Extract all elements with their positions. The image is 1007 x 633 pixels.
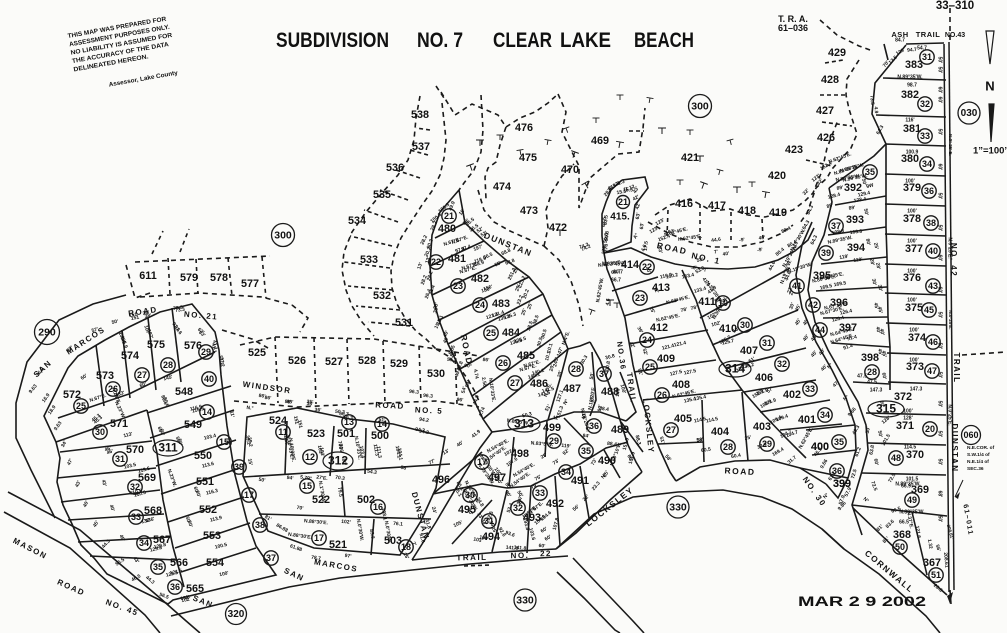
svg-text:34: 34 bbox=[922, 159, 932, 169]
svg-text:97': 97' bbox=[344, 553, 352, 560]
svg-text:100': 100' bbox=[903, 408, 913, 414]
svg-text:28': 28' bbox=[868, 258, 875, 266]
svg-text:45': 45' bbox=[876, 306, 883, 314]
svg-text:527: 527 bbox=[325, 356, 343, 368]
svg-text:27: 27 bbox=[510, 378, 520, 388]
svg-text:N.0°25'E.: N.0°25'E. bbox=[947, 237, 953, 259]
svg-text:573: 573 bbox=[96, 370, 114, 382]
svg-text:491: 491 bbox=[571, 475, 589, 487]
svg-text:548: 548 bbox=[175, 386, 193, 398]
svg-text:532: 532 bbox=[373, 290, 391, 302]
svg-text:100.9: 100.9 bbox=[906, 149, 919, 155]
svg-text:S.W.1/4 of: S.W.1/4 of bbox=[967, 452, 990, 458]
svg-text:489: 489 bbox=[611, 424, 629, 436]
svg-text:578: 578 bbox=[210, 272, 228, 284]
svg-text:553: 553 bbox=[203, 530, 221, 542]
svg-text:320: 320 bbox=[228, 609, 245, 620]
svg-text:50': 50' bbox=[589, 372, 596, 380]
svg-text:63.5: 63.5 bbox=[603, 215, 610, 225]
svg-text:611: 611 bbox=[139, 270, 156, 282]
svg-text:33: 33 bbox=[535, 488, 545, 498]
svg-text:N.E.COR. of: N.E.COR. of bbox=[967, 445, 995, 451]
svg-text:421: 421 bbox=[681, 152, 699, 164]
svg-text:405: 405 bbox=[674, 413, 692, 425]
svg-text:535: 535 bbox=[373, 189, 391, 201]
svg-text:44: 44 bbox=[815, 325, 825, 335]
svg-text:40: 40 bbox=[204, 374, 214, 384]
svg-text:96': 96' bbox=[456, 397, 463, 404]
svg-text:579: 579 bbox=[180, 272, 198, 284]
svg-text:141.8: 141.8 bbox=[505, 545, 518, 552]
svg-text:31: 31 bbox=[922, 52, 932, 62]
svg-text:45: 45 bbox=[924, 305, 934, 315]
svg-text:12: 12 bbox=[305, 452, 315, 462]
svg-text:TRAIL: TRAIL bbox=[456, 553, 487, 563]
svg-text:147.3: 147.3 bbox=[870, 387, 883, 393]
svg-text:39: 39 bbox=[821, 248, 831, 258]
svg-text:419: 419 bbox=[769, 207, 787, 219]
svg-text:ROAD: ROAD bbox=[724, 465, 756, 477]
svg-text:577: 577 bbox=[241, 278, 259, 290]
svg-text:60.7: 60.7 bbox=[613, 269, 623, 275]
svg-text:485: 485 bbox=[517, 350, 535, 362]
svg-text:94.7: 94.7 bbox=[907, 47, 917, 54]
svg-text:33: 33 bbox=[920, 131, 930, 141]
svg-text:35: 35 bbox=[153, 562, 163, 572]
svg-text:529: 529 bbox=[390, 358, 408, 370]
svg-text:-9': -9' bbox=[739, 237, 745, 244]
svg-text:537: 537 bbox=[412, 141, 430, 153]
svg-text:34: 34 bbox=[561, 467, 571, 477]
svg-text:528: 528 bbox=[358, 355, 376, 367]
svg-text:50': 50' bbox=[937, 343, 943, 350]
svg-text:36: 36 bbox=[170, 582, 180, 592]
svg-text:33: 33 bbox=[805, 384, 815, 394]
svg-text:27: 27 bbox=[666, 425, 676, 435]
svg-text:536: 536 bbox=[386, 162, 404, 174]
svg-text:33–310: 33–310 bbox=[936, 0, 974, 12]
svg-text:89': 89' bbox=[836, 185, 844, 192]
svg-text:LAKE: LAKE bbox=[560, 29, 611, 52]
svg-text:423: 423 bbox=[785, 144, 803, 156]
svg-text:531: 531 bbox=[395, 317, 413, 329]
svg-text:311: 311 bbox=[158, 441, 178, 455]
svg-text:330: 330 bbox=[516, 594, 534, 606]
svg-text:54.7: 54.7 bbox=[917, 45, 927, 51]
svg-text:42: 42 bbox=[808, 300, 818, 310]
svg-text:63': 63' bbox=[635, 212, 642, 220]
svg-text:26: 26 bbox=[657, 390, 667, 400]
svg-text:409: 409 bbox=[657, 353, 675, 365]
svg-text:523: 523 bbox=[307, 428, 325, 440]
svg-text:533: 533 bbox=[360, 254, 378, 266]
svg-text:418: 418 bbox=[738, 205, 756, 217]
svg-text:66.9: 66.9 bbox=[901, 483, 911, 489]
svg-text:50': 50' bbox=[937, 225, 943, 232]
svg-text:23: 23 bbox=[635, 293, 645, 303]
svg-text:330: 330 bbox=[669, 501, 687, 513]
svg-text:300: 300 bbox=[691, 100, 709, 112]
svg-text:15: 15 bbox=[219, 437, 229, 447]
svg-text:46: 46 bbox=[928, 337, 938, 347]
svg-text:411: 411 bbox=[698, 296, 715, 308]
svg-text:483: 483 bbox=[492, 298, 510, 310]
svg-text:368: 368 bbox=[893, 529, 911, 541]
svg-text:35: 35 bbox=[581, 446, 591, 456]
svg-text:501: 501 bbox=[337, 428, 355, 440]
svg-text:90°: 90° bbox=[464, 363, 472, 370]
svg-text:80': 80' bbox=[864, 238, 871, 246]
svg-text:28: 28 bbox=[163, 360, 173, 370]
svg-text:427: 427 bbox=[816, 105, 834, 117]
svg-text:51': 51' bbox=[378, 417, 385, 424]
svg-text:100': 100' bbox=[905, 178, 915, 184]
svg-text:404: 404 bbox=[711, 426, 729, 438]
svg-text:35: 35 bbox=[834, 437, 844, 447]
svg-text:50': 50' bbox=[937, 57, 943, 64]
svg-text:60': 60' bbox=[880, 372, 887, 380]
svg-text:500: 500 bbox=[371, 430, 389, 442]
svg-text:102': 102' bbox=[341, 519, 351, 526]
svg-text:96.3: 96.3 bbox=[409, 389, 419, 396]
svg-text:28': 28' bbox=[874, 262, 881, 270]
svg-text:TRAIL: TRAIL bbox=[952, 352, 961, 383]
svg-text:N.°: N.° bbox=[246, 405, 253, 412]
svg-text:48: 48 bbox=[891, 453, 901, 463]
svg-text:25: 25 bbox=[486, 328, 496, 338]
svg-text:415.: 415. bbox=[610, 212, 630, 223]
svg-text:50': 50' bbox=[937, 67, 943, 74]
svg-text:25: 25 bbox=[645, 362, 655, 372]
svg-text:574: 574 bbox=[121, 350, 139, 362]
svg-text:51: 51 bbox=[931, 570, 941, 580]
svg-text:550: 550 bbox=[194, 450, 212, 462]
svg-text:60': 60' bbox=[937, 97, 943, 104]
svg-text:412: 412 bbox=[650, 322, 668, 334]
svg-text:26: 26 bbox=[498, 358, 508, 368]
svg-text:378: 378 bbox=[903, 213, 921, 225]
svg-text:SEC.36: SEC.36 bbox=[967, 466, 984, 472]
svg-text:50': 50' bbox=[937, 431, 943, 438]
svg-text:50': 50' bbox=[862, 208, 869, 216]
svg-text:492: 492 bbox=[546, 498, 564, 510]
svg-text:38: 38 bbox=[926, 218, 936, 228]
svg-text:426: 426 bbox=[817, 132, 835, 144]
svg-text:420: 420 bbox=[768, 170, 786, 182]
svg-text:40': 40' bbox=[878, 328, 885, 336]
svg-text:11': 11' bbox=[228, 410, 235, 417]
svg-text:393: 393 bbox=[846, 214, 864, 226]
svg-text:24: 24 bbox=[475, 300, 485, 310]
svg-text:128': 128' bbox=[903, 415, 913, 421]
svg-text:ROAD: ROAD bbox=[375, 400, 405, 411]
svg-text:35': 35' bbox=[306, 399, 313, 406]
svg-text:43: 43 bbox=[928, 281, 938, 291]
svg-text:476: 476 bbox=[515, 122, 533, 134]
svg-text:370: 370 bbox=[906, 449, 924, 461]
svg-text:27: 27 bbox=[137, 370, 147, 380]
svg-text:398: 398 bbox=[861, 352, 879, 364]
svg-text:47.5: 47.5 bbox=[857, 373, 867, 379]
svg-text:37: 37 bbox=[266, 553, 276, 563]
svg-text:98.7: 98.7 bbox=[907, 82, 917, 88]
svg-text:50: 50 bbox=[895, 542, 905, 552]
svg-text:402: 402 bbox=[783, 389, 801, 401]
svg-text:N.0°25'E.: N.0°25'E. bbox=[947, 404, 953, 426]
svg-text:100': 100' bbox=[909, 327, 919, 333]
svg-text:17: 17 bbox=[314, 533, 324, 543]
svg-text:84.7: 84.7 bbox=[895, 37, 905, 43]
svg-text:60': 60' bbox=[538, 543, 545, 550]
svg-text:55.3: 55.3 bbox=[447, 357, 457, 364]
svg-text:66.7: 66.7 bbox=[611, 277, 621, 283]
svg-text:50': 50' bbox=[878, 400, 885, 408]
svg-text:N.0° 25' E.: N.0° 25' E. bbox=[948, 134, 953, 156]
svg-text:23: 23 bbox=[453, 281, 463, 291]
svg-text:63': 63' bbox=[639, 222, 646, 229]
svg-text:060: 060 bbox=[963, 430, 978, 440]
svg-text:394: 394 bbox=[847, 242, 865, 254]
svg-text:15': 15' bbox=[246, 458, 253, 466]
svg-text:116': 116' bbox=[905, 117, 914, 123]
svg-text:50': 50' bbox=[258, 477, 266, 484]
svg-text:278: 278 bbox=[603, 243, 610, 252]
svg-text:568: 568 bbox=[144, 505, 162, 517]
svg-text:375: 375 bbox=[905, 302, 923, 314]
svg-text:100': 100' bbox=[907, 208, 917, 214]
svg-text:25': 25' bbox=[872, 242, 879, 250]
svg-text:4.6: 4.6 bbox=[605, 298, 612, 306]
svg-text:100': 100' bbox=[907, 297, 917, 303]
svg-text:33: 33 bbox=[131, 512, 141, 522]
svg-text:571: 571 bbox=[110, 418, 128, 430]
svg-text:60': 60' bbox=[937, 87, 943, 94]
svg-text:22: 22 bbox=[431, 257, 441, 267]
svg-text:47: 47 bbox=[927, 366, 937, 376]
svg-text:469: 469 bbox=[591, 135, 609, 147]
svg-text:100': 100' bbox=[907, 268, 917, 274]
svg-text:60': 60' bbox=[872, 458, 879, 466]
svg-text:50': 50' bbox=[937, 193, 943, 200]
svg-text:N.89°35'W.: N.89°35'W. bbox=[897, 74, 923, 80]
svg-text:428: 428 bbox=[821, 74, 839, 86]
svg-text:21: 21 bbox=[618, 197, 628, 207]
svg-text:40: 40 bbox=[928, 246, 938, 256]
svg-text:31: 31 bbox=[762, 338, 772, 348]
svg-text:406: 406 bbox=[755, 372, 773, 384]
svg-text:570: 570 bbox=[126, 444, 144, 456]
svg-text:429: 429 bbox=[828, 47, 846, 59]
svg-text:25: 25 bbox=[76, 401, 86, 411]
svg-text:300: 300 bbox=[274, 229, 292, 241]
svg-text:472: 472 bbox=[549, 222, 567, 234]
svg-text:86': 86' bbox=[264, 395, 271, 402]
svg-text:30: 30 bbox=[95, 427, 105, 437]
svg-text:NO.43: NO.43 bbox=[945, 32, 965, 39]
svg-text:28: 28 bbox=[571, 364, 581, 374]
svg-text:50': 50' bbox=[937, 312, 943, 319]
svg-text:73.5: 73.5 bbox=[868, 95, 875, 105]
svg-text:525: 525 bbox=[248, 347, 266, 359]
svg-text:417: 417 bbox=[708, 200, 726, 212]
svg-text:50': 50' bbox=[865, 426, 872, 434]
svg-text:475: 475 bbox=[519, 152, 537, 164]
svg-text:481: 481 bbox=[448, 253, 466, 265]
svg-text:60': 60' bbox=[937, 287, 943, 294]
svg-text:76.1: 76.1 bbox=[393, 521, 403, 528]
svg-text:36: 36 bbox=[924, 186, 934, 196]
svg-text:100': 100' bbox=[909, 357, 919, 363]
svg-text:N.0°25'E.: N.0°25'E. bbox=[948, 310, 953, 329]
svg-text:34: 34 bbox=[820, 410, 830, 420]
svg-text:20: 20 bbox=[925, 424, 935, 434]
svg-text:60': 60' bbox=[937, 255, 943, 262]
svg-text:25': 25' bbox=[744, 435, 752, 442]
svg-text:86': 86' bbox=[482, 357, 489, 364]
svg-text:530: 530 bbox=[427, 368, 445, 380]
svg-text:17.5: 17.5 bbox=[643, 241, 650, 251]
svg-text:80': 80' bbox=[340, 458, 347, 466]
svg-text:60': 60' bbox=[937, 164, 943, 171]
svg-text:SUBDIVISION: SUBDIVISION bbox=[276, 29, 389, 52]
svg-text:50': 50' bbox=[937, 516, 943, 523]
svg-text:58': 58' bbox=[400, 465, 408, 472]
svg-text:94': 94' bbox=[286, 475, 294, 482]
svg-text:551: 551 bbox=[196, 476, 214, 488]
svg-text:50': 50' bbox=[937, 372, 943, 379]
svg-text:31: 31 bbox=[115, 454, 125, 464]
svg-text:50': 50' bbox=[937, 401, 943, 408]
svg-text:N.62°45'E.: N.62°45'E. bbox=[602, 261, 627, 267]
svg-text:482: 482 bbox=[471, 273, 489, 285]
svg-text:TRAIL: TRAIL bbox=[916, 30, 941, 39]
svg-text:96.3: 96.3 bbox=[423, 393, 433, 400]
svg-text:N: N bbox=[985, 78, 994, 93]
svg-text:DUNSTAN: DUNSTAN bbox=[950, 423, 959, 472]
svg-text:706: 706 bbox=[337, 443, 344, 452]
svg-text:526: 526 bbox=[288, 355, 306, 367]
svg-text:371: 371 bbox=[896, 420, 914, 432]
svg-text:566: 566 bbox=[170, 557, 188, 569]
svg-text:474: 474 bbox=[493, 181, 511, 193]
svg-text:50': 50' bbox=[937, 459, 943, 466]
svg-text:499: 499 bbox=[543, 422, 561, 434]
svg-text:N.E.1/4 of: N.E.1/4 of bbox=[967, 459, 989, 465]
svg-text:480: 480 bbox=[438, 223, 456, 235]
svg-text:58': 58' bbox=[696, 437, 704, 444]
svg-text:554: 554 bbox=[206, 557, 224, 569]
svg-text:538: 538 bbox=[411, 109, 429, 121]
svg-text:18: 18 bbox=[401, 542, 411, 552]
svg-text:534: 534 bbox=[348, 215, 366, 227]
svg-text:CLEAR: CLEAR bbox=[493, 29, 552, 52]
svg-text:552: 552 bbox=[199, 504, 217, 516]
svg-text:382: 382 bbox=[901, 89, 919, 101]
svg-text:496: 496 bbox=[432, 474, 450, 486]
svg-text:28: 28 bbox=[867, 367, 877, 377]
svg-text:40': 40' bbox=[722, 251, 730, 258]
svg-text:575: 575 bbox=[147, 339, 165, 351]
svg-text:30: 30 bbox=[740, 320, 750, 330]
svg-text:84': 84' bbox=[582, 433, 589, 440]
svg-text:408: 408 bbox=[672, 379, 690, 391]
svg-text:119': 119' bbox=[853, 257, 863, 264]
svg-text:374: 374 bbox=[908, 332, 926, 344]
svg-text:50': 50' bbox=[876, 430, 883, 438]
svg-text:68': 68' bbox=[937, 491, 943, 498]
svg-text:50': 50' bbox=[937, 129, 943, 136]
svg-text:49: 49 bbox=[907, 495, 917, 505]
svg-text:89': 89' bbox=[848, 205, 856, 212]
svg-text:372: 372 bbox=[894, 391, 912, 403]
svg-text:45': 45' bbox=[880, 350, 887, 358]
svg-text:32: 32 bbox=[777, 359, 787, 369]
svg-text:367: 367 bbox=[923, 557, 941, 569]
svg-text:NO. 7: NO. 7 bbox=[417, 29, 463, 52]
svg-text:403: 403 bbox=[753, 421, 771, 433]
svg-text:1”=100’: 1”=100’ bbox=[973, 146, 1007, 157]
svg-text:47.5: 47.5 bbox=[867, 379, 877, 385]
svg-text:401: 401 bbox=[798, 414, 816, 426]
svg-text:473: 473 bbox=[520, 205, 538, 217]
svg-text:29: 29 bbox=[201, 347, 211, 357]
svg-text:50.3: 50.3 bbox=[339, 411, 349, 418]
svg-text:24: 24 bbox=[642, 335, 652, 345]
svg-text:MAR 2 9 2002: MAR 2 9 2002 bbox=[798, 594, 926, 609]
svg-text:100': 100' bbox=[907, 238, 917, 244]
svg-text:114.5: 114.5 bbox=[904, 444, 916, 450]
svg-text:38': 38' bbox=[144, 313, 152, 320]
svg-text:030: 030 bbox=[961, 108, 978, 119]
svg-text:61–036: 61–036 bbox=[778, 23, 808, 33]
svg-text:39: 39 bbox=[234, 462, 244, 472]
svg-text:NO. 5: NO. 5 bbox=[415, 405, 444, 415]
svg-text:34: 34 bbox=[139, 538, 149, 548]
svg-text:470: 470 bbox=[561, 164, 579, 176]
svg-text:36': 36' bbox=[314, 407, 321, 413]
svg-text:4.9: 4.9 bbox=[872, 106, 879, 114]
svg-text:549: 549 bbox=[184, 419, 202, 431]
svg-text:15: 15 bbox=[302, 481, 312, 491]
svg-text:377: 377 bbox=[905, 243, 923, 255]
svg-text:32: 32 bbox=[920, 99, 930, 109]
svg-text:521: 521 bbox=[329, 539, 347, 551]
svg-text:30': 30' bbox=[876, 284, 883, 292]
svg-text:95': 95' bbox=[286, 399, 293, 406]
svg-text:BEACH: BEACH bbox=[634, 29, 694, 52]
svg-text:50.8: 50.8 bbox=[604, 231, 611, 241]
svg-text:416: 416 bbox=[675, 198, 693, 210]
svg-text:40': 40' bbox=[758, 235, 766, 242]
svg-text:407: 407 bbox=[740, 345, 758, 357]
svg-text:70': 70' bbox=[296, 505, 304, 512]
svg-text:487: 487 bbox=[563, 383, 581, 395]
svg-text:28: 28 bbox=[723, 442, 733, 452]
svg-text:147.3: 147.3 bbox=[910, 386, 923, 392]
